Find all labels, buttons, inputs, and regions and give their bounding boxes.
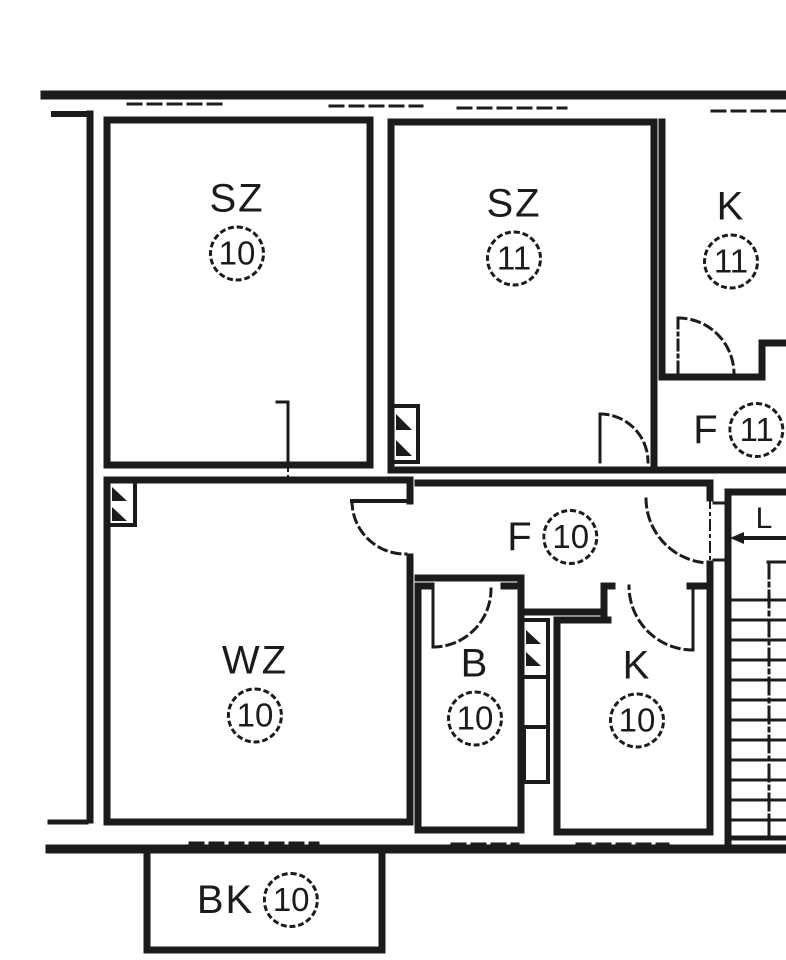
room-label-k10: K 10 — [609, 646, 665, 749]
room-label-f11: F 11 — [693, 402, 784, 458]
sz10-door-leaf — [277, 402, 288, 465]
room-number-badge: 11 — [703, 234, 759, 290]
shaft-flue-box — [521, 620, 548, 677]
room-label-sz10: SZ 10 — [209, 179, 265, 282]
k11-door-swing — [678, 318, 734, 374]
room-name: K — [717, 187, 746, 227]
wz10-door-swing — [352, 501, 406, 554]
room-number-badge: 10 — [609, 693, 665, 749]
sz11-door-swing — [600, 414, 648, 462]
room-number-badge: 10 — [227, 688, 283, 744]
room-label-k11: K 11 — [703, 187, 759, 290]
stair-label: L — [756, 502, 773, 536]
stairwell — [714, 492, 786, 842]
stair-treads — [730, 600, 786, 820]
room-number-badge: 10 — [447, 691, 503, 747]
room-number-badge: 10 — [209, 226, 265, 282]
room-sz10-walls — [107, 120, 370, 483]
room-name: F — [507, 517, 533, 557]
sz11-flue-icon — [396, 414, 412, 456]
room-number-badge: 11 — [729, 402, 785, 458]
room-name: BK — [197, 880, 254, 920]
floor-plan-page: SZ 10 SZ 11 K 11 F 11 WZ 10 F 10 B 10 K … — [0, 0, 786, 960]
f10-door-swing — [646, 499, 710, 563]
room-number-badge: 10 — [543, 509, 599, 565]
shaft-flue-icon — [526, 630, 541, 666]
service-shaft — [521, 620, 548, 782]
stair-direction-arrowhead — [730, 532, 744, 544]
wz10-flue-icon — [112, 487, 127, 521]
room-label-b10: B 10 — [447, 644, 503, 747]
room-name: SZ — [209, 179, 264, 219]
room-number-badge: 11 — [486, 231, 542, 287]
room-label-wz10: WZ 10 — [222, 641, 288, 744]
room-label-bk10: BK 10 — [197, 872, 319, 928]
floor-plan-drawing — [0, 0, 786, 960]
room-label-f10: F 10 — [507, 509, 598, 565]
room-label-sz11: SZ 11 — [486, 184, 542, 287]
room-name: F — [693, 410, 719, 450]
room-name: SZ — [486, 184, 541, 224]
room-name: WZ — [222, 641, 288, 681]
k10-door-swing — [629, 586, 693, 650]
b10-door-swing — [433, 589, 491, 647]
room-sz11-walls — [391, 122, 654, 470]
room-name: K — [623, 646, 652, 686]
room-name: B — [461, 644, 490, 684]
room-number-badge: 10 — [263, 872, 319, 928]
